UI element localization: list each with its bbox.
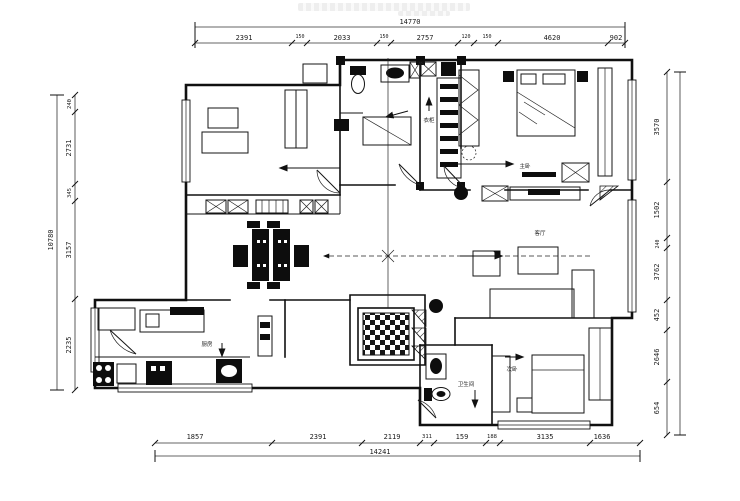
chair xyxy=(267,282,280,289)
label-kitchen: 厨房 xyxy=(201,340,213,348)
cabinet xyxy=(98,308,135,330)
dim-left-0: 240 xyxy=(67,99,73,109)
stool-icon xyxy=(462,146,476,160)
chair xyxy=(247,221,260,228)
door-leaf xyxy=(399,164,420,185)
door-leaf xyxy=(110,330,136,354)
pillow xyxy=(521,74,536,84)
dim-top-4: 2757 xyxy=(417,34,434,42)
dim-bottom-total: 14241 xyxy=(369,448,390,456)
fridge-icon xyxy=(146,361,172,385)
entry-foyer xyxy=(358,299,443,360)
bed xyxy=(532,355,584,413)
decorative-tile xyxy=(363,313,409,355)
dim-left-4: 2235 xyxy=(65,337,73,354)
dim-right-5: 2646 xyxy=(653,349,661,366)
dim-left-1: 2731 xyxy=(65,140,73,157)
dim-top-1: 150 xyxy=(295,34,304,40)
dim-bottom-3: 311 xyxy=(422,434,432,440)
chair xyxy=(294,245,309,267)
dim-bottom-7: 1636 xyxy=(594,433,611,441)
kitchen-furniture xyxy=(93,307,272,386)
dim-right-1: 1502 xyxy=(653,202,661,219)
dim-left-2: 345 xyxy=(67,188,73,198)
nightstand xyxy=(577,71,588,82)
pillow xyxy=(543,74,565,84)
dim-top-2: 2033 xyxy=(334,34,351,42)
nightstand xyxy=(503,71,514,82)
corner-hatch xyxy=(600,186,618,200)
study-room-furniture xyxy=(202,90,340,193)
dim-bottom-6: 3135 xyxy=(537,433,554,441)
chair xyxy=(267,221,280,228)
toilet-tank xyxy=(350,66,366,75)
stove-icon xyxy=(93,362,114,386)
desk xyxy=(208,108,238,128)
dining-furniture xyxy=(233,221,309,289)
bathroom-top-fixtures xyxy=(334,62,420,185)
sideboard-row xyxy=(206,200,328,213)
bathroom-small-fixtures xyxy=(418,354,450,418)
dim-right-4: 452 xyxy=(653,309,661,322)
dim-left-3: 3157 xyxy=(65,242,73,259)
chair xyxy=(233,245,248,267)
dimension-chain-left: 10780 240 2731 345 3157 2235 xyxy=(47,92,78,393)
dim-top-total: 14770 xyxy=(399,18,420,26)
dim-top-0: 2391 xyxy=(236,34,253,42)
sink-icon xyxy=(386,68,404,79)
label-living-room: 客厅 xyxy=(534,229,546,237)
sofa xyxy=(490,289,574,318)
wardrobe xyxy=(589,328,612,400)
tv-console xyxy=(522,172,556,177)
dim-top-6: 150 xyxy=(482,34,491,40)
dim-top-5: 120 xyxy=(461,34,470,40)
label-master-bedroom: 主卧 xyxy=(519,162,531,170)
door-leaf xyxy=(317,170,340,193)
dim-bottom-5: 188 xyxy=(487,434,497,440)
dim-right-6: 654 xyxy=(653,402,661,415)
floor-plan-canvas: 主卧 客厅 厨房 卫生间 次卧 衣柜 14770 2391 150 xyxy=(0,0,740,501)
toilet-icon xyxy=(352,75,365,94)
arrow-bathroom xyxy=(386,111,408,117)
living-room-furniture xyxy=(454,186,618,318)
dimension-chain-bottom: 1857 2391 2119 311 159 188 3135 1636 142… xyxy=(152,433,643,462)
dim-bottom-0: 1857 xyxy=(187,433,204,441)
coffee-table xyxy=(518,247,558,274)
label-closet: 衣柜 xyxy=(423,116,435,124)
dim-top-8: 902 xyxy=(610,34,623,42)
dim-bottom-4: 159 xyxy=(456,433,469,441)
wash-basin xyxy=(334,119,349,131)
cabinet xyxy=(202,132,248,153)
label-second-bedroom: 次卧 xyxy=(506,365,518,373)
plant-icon xyxy=(429,299,443,313)
dim-bottom-1: 2391 xyxy=(310,433,327,441)
plant-icon xyxy=(454,186,468,200)
dimension-chain-right: 3570 1502 240 3762 452 2646 654 xyxy=(653,69,686,438)
dim-right-0: 3570 xyxy=(653,119,661,136)
tv-icon xyxy=(528,189,560,195)
dimension-chain-top: 14770 2391 150 2033 150 2757 120 150 462… xyxy=(192,18,628,48)
cabinet xyxy=(492,356,510,412)
dining-table xyxy=(252,229,269,281)
side-table xyxy=(473,251,500,276)
master-bedroom-furniture xyxy=(444,68,612,188)
sofa-chaise xyxy=(572,270,594,318)
nightstand xyxy=(517,398,532,412)
floor-plan-drawing: 主卧 客厅 厨房 卫生间 次卧 衣柜 14770 2391 150 xyxy=(0,0,740,501)
flue-box xyxy=(303,64,327,83)
dim-top-3: 150 xyxy=(379,34,388,40)
toilet-tank xyxy=(424,388,432,401)
dim-right-2: 240 xyxy=(655,239,661,248)
wardrobe xyxy=(459,70,479,146)
dim-bottom-2: 2119 xyxy=(384,433,401,441)
label-bathroom: 卫生间 xyxy=(458,380,475,388)
dim-top-7: 4620 xyxy=(544,34,561,42)
chair xyxy=(247,282,260,289)
dim-right-3: 3762 xyxy=(653,264,661,281)
dim-left-total: 10780 xyxy=(47,229,55,250)
